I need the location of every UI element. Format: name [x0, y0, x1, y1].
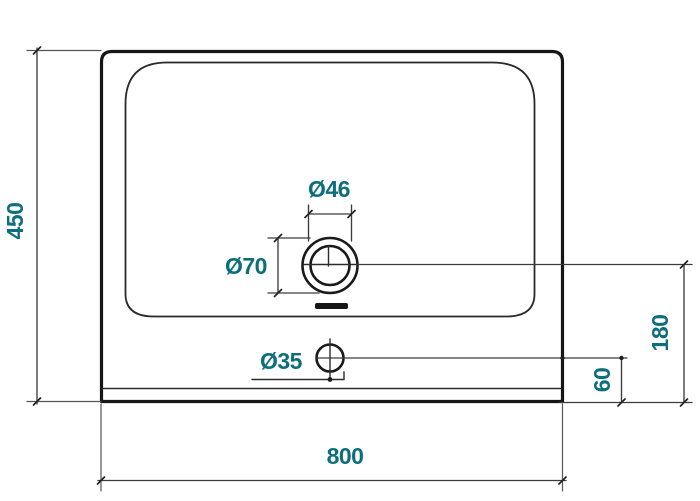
overflow-slot [315, 303, 348, 309]
dim-label-drain-center-to-front: 60 [589, 368, 615, 393]
dim-label-tap-inner-diameter: Ø46 [308, 176, 350, 202]
dim-label-tap-center-to-front: 180 [647, 315, 673, 352]
dim-label-overall-width: 800 [327, 443, 364, 469]
dim-overall-height: 450 [2, 47, 101, 405]
washbasin-dimension-drawing: 450 800 Ø46 [0, 0, 700, 501]
dim-label-drain-diameter: Ø35 [260, 348, 303, 374]
dim-overall-width: 800 [98, 404, 567, 491]
dim-tap-center-to-front: 180 [357, 261, 692, 406]
dim-tap-inner-diameter: Ø46 [305, 176, 355, 241]
line-node-dot [619, 356, 623, 360]
technical-drawing-canvas: 450 800 Ø46 [0, 0, 700, 501]
dim-tap-outer-diameter: Ø70 [225, 235, 319, 297]
tap-hole-inner-circle [311, 246, 350, 285]
dim-drain-center-to-front: 60 [589, 356, 625, 406]
leader-node-dot [328, 377, 333, 382]
dim-label-overall-height: 450 [2, 203, 28, 240]
dim-label-tap-outer-diameter: Ø70 [225, 253, 267, 279]
drain-hole: Ø35 [252, 339, 627, 382]
tap-hole [303, 238, 358, 293]
sink-outline [102, 52, 563, 402]
line-node-dot [560, 356, 564, 360]
sink-outer-edge [102, 52, 563, 402]
